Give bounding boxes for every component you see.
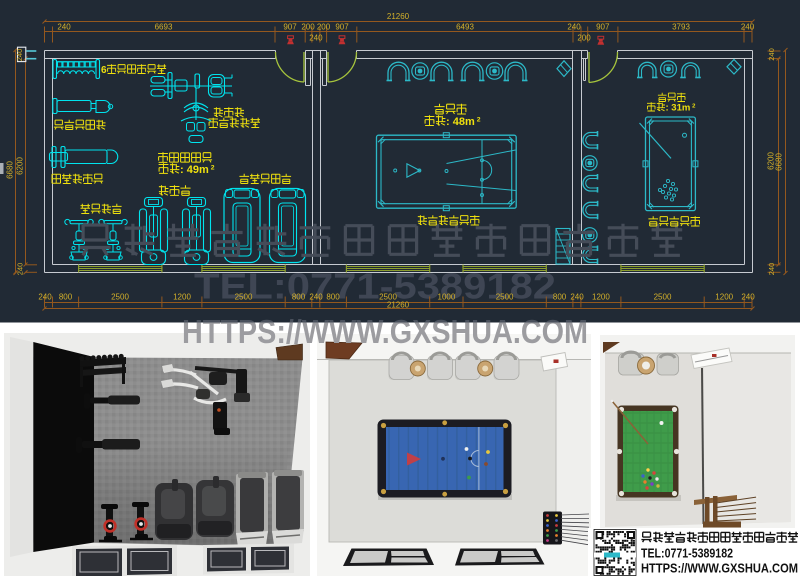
svg-text:6680: 6680 [775,153,784,171]
svg-text:240: 240 [767,263,776,276]
svg-text:2: 2 [477,116,481,123]
svg-text:240: 240 [57,23,71,32]
svg-text:907: 907 [335,23,349,32]
svg-text:HTTPS://WWW.GXSHUA.COM: HTTPS://WWW.GXSHUA.COM [641,562,798,576]
svg-text:2500: 2500 [654,293,672,302]
svg-text:240: 240 [309,293,323,302]
svg-text:21260: 21260 [387,12,410,21]
svg-text:907: 907 [283,23,297,32]
svg-text:200: 200 [301,23,315,32]
svg-text:200: 200 [317,23,331,32]
svg-text:240: 240 [767,48,776,61]
svg-text:800: 800 [553,293,567,302]
svg-text:800: 800 [59,293,73,302]
svg-text:21260: 21260 [387,300,410,309]
svg-text:2: 2 [211,164,215,171]
svg-text:1000: 1000 [438,293,456,302]
svg-text:: 31m: : 31m [666,103,691,114]
svg-text:6200: 6200 [767,152,776,170]
svg-text:6693: 6693 [155,23,173,32]
svg-text:240: 240 [38,293,52,302]
svg-text:240: 240 [15,49,24,62]
svg-text:240: 240 [16,263,25,276]
svg-text:2500: 2500 [235,293,253,302]
svg-text:6493: 6493 [456,23,474,32]
svg-text:: 48m: : 48m [446,116,475,128]
svg-text:2500: 2500 [496,293,514,302]
svg-text:2500: 2500 [111,293,129,302]
svg-text:1200: 1200 [715,293,733,302]
svg-text:1200: 1200 [592,293,610,302]
svg-text:240: 240 [309,34,323,43]
svg-text:240: 240 [741,23,755,32]
svg-text:3793: 3793 [672,23,690,32]
svg-text:240: 240 [741,293,755,302]
svg-text:800: 800 [326,293,340,302]
svg-text:240: 240 [570,293,584,302]
svg-text:: 49m: : 49m [180,164,209,176]
svg-text:800: 800 [292,293,306,302]
svg-text:907: 907 [596,23,610,32]
svg-text:1200: 1200 [173,293,191,302]
svg-text:240: 240 [567,23,581,32]
svg-text:6200: 6200 [15,157,24,175]
svg-text:6680: 6680 [6,161,15,179]
svg-text:TEL:0771-5389182: TEL:0771-5389182 [641,546,733,561]
svg-text:200: 200 [577,34,591,43]
svg-text:6: 6 [101,65,107,76]
